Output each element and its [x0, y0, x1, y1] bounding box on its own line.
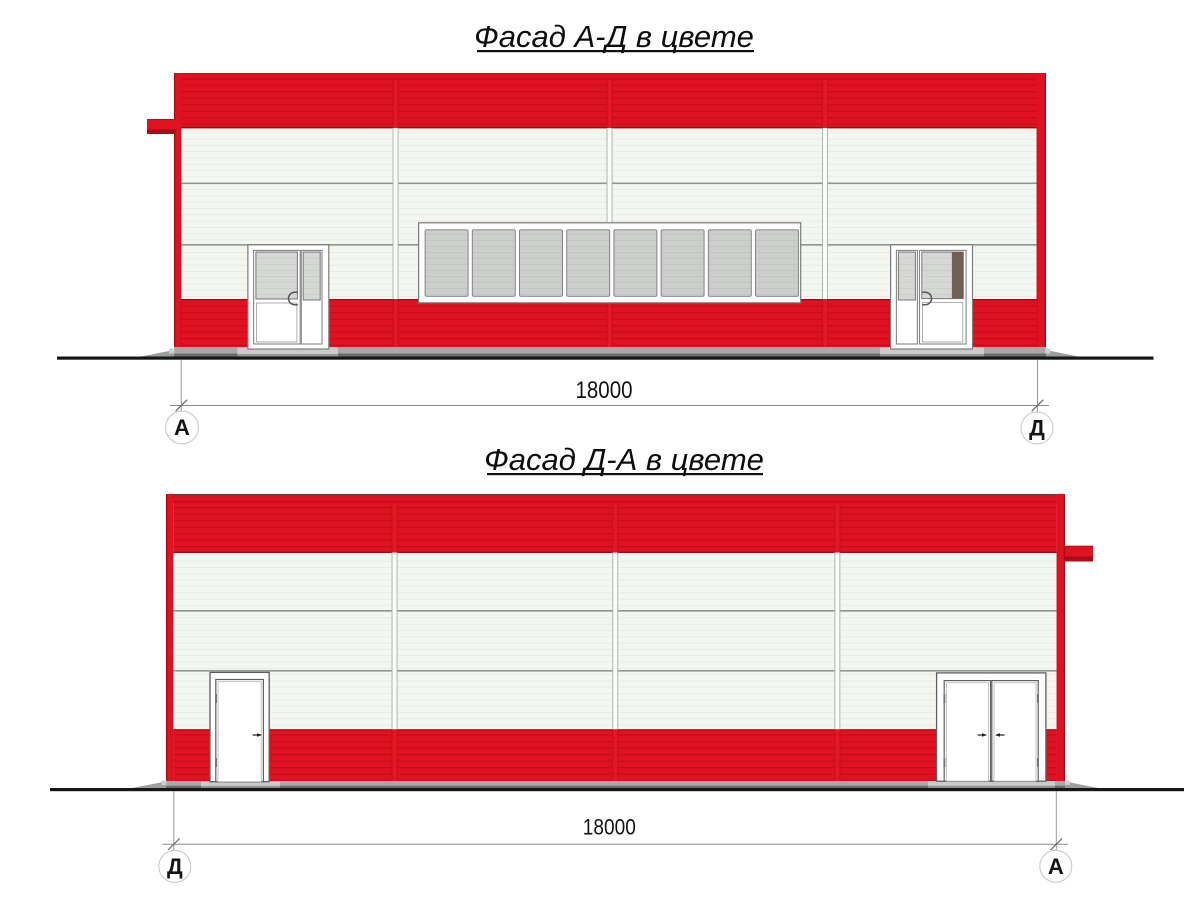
svg-text:А: А: [1048, 854, 1064, 879]
svg-text:18000: 18000: [576, 377, 633, 404]
svg-text:Фасад А-Д в цвете: Фасад А-Д в цвете: [474, 19, 754, 54]
svg-text:Д: Д: [167, 854, 183, 879]
svg-text:Д: Д: [1029, 416, 1045, 441]
svg-text:18000: 18000: [583, 815, 636, 840]
svg-text:А: А: [174, 415, 190, 440]
svg-text:Фасад Д-А в цвете: Фасад Д-А в цвете: [484, 442, 764, 477]
